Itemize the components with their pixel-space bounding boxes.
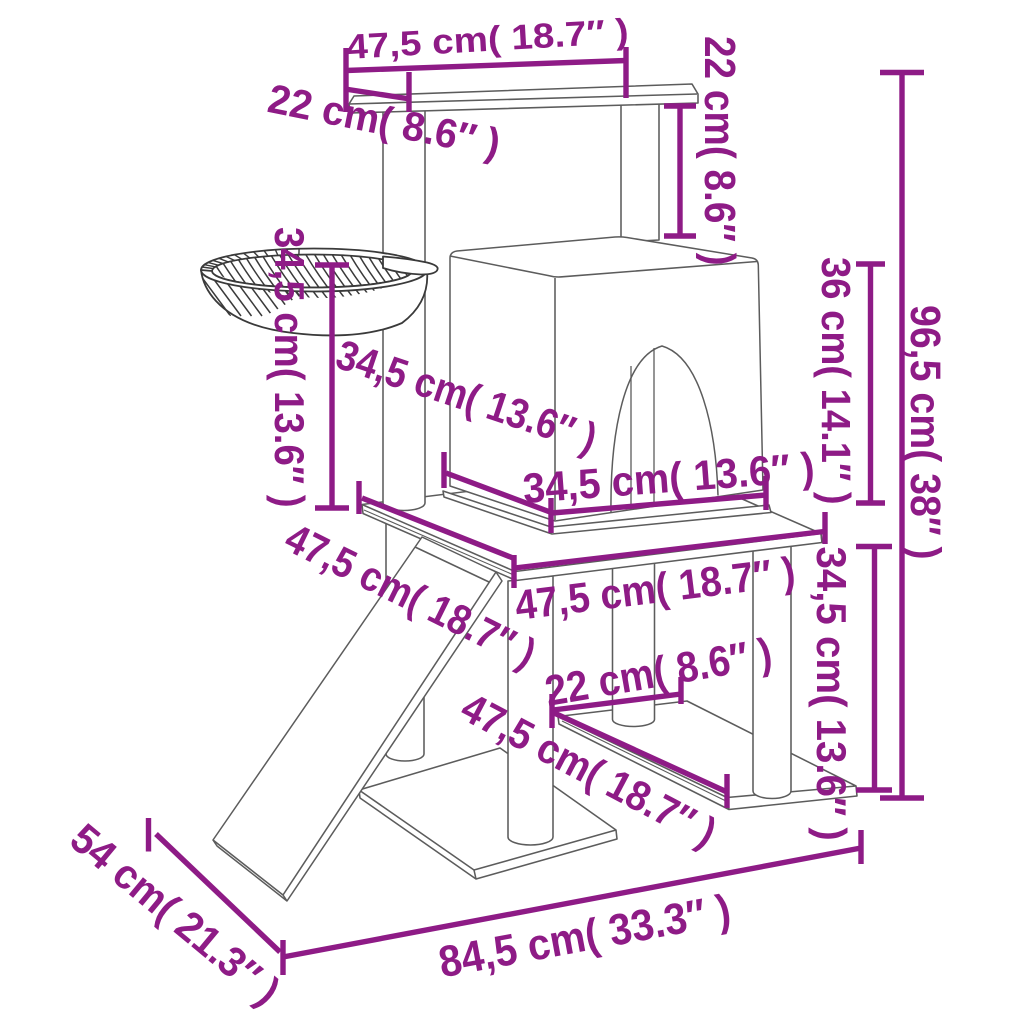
svg-text:47,5 cm( 18.7″ ): 47,5 cm( 18.7″ ) [345,12,629,67]
svg-text:22 cm( 8.6″ ): 22 cm( 8.6″ ) [695,36,744,266]
svg-text:36 cm( 14.1″ ): 36 cm( 14.1″ ) [813,257,859,505]
svg-text:34,5 cm( 13.6″ ): 34,5 cm( 13.6″ ) [808,547,855,841]
svg-text:96,5 cm( 38″ ): 96,5 cm( 38″ ) [901,305,949,560]
svg-text:22 cm( 8.6″ ): 22 cm( 8.6″ ) [541,629,775,716]
svg-text:34,5 cm( 13.6″ ): 34,5 cm( 13.6″ ) [266,227,313,508]
